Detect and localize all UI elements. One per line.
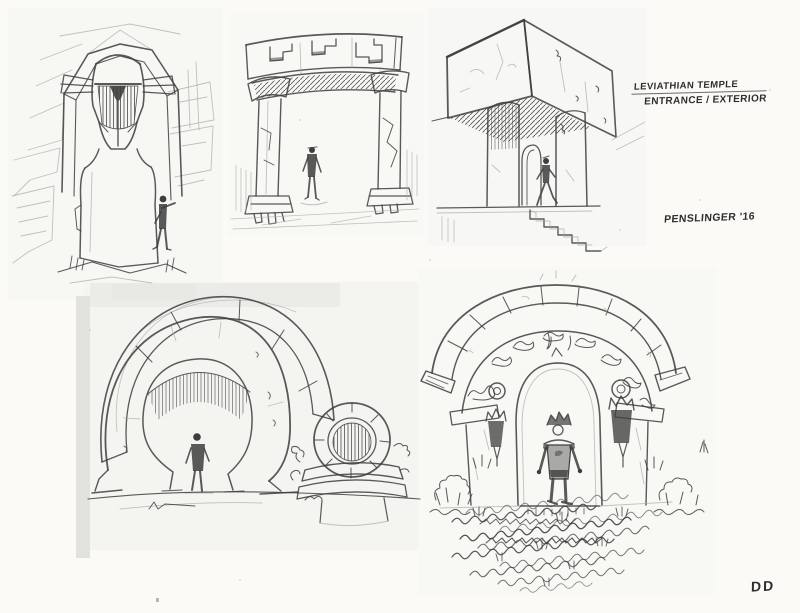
corner-initials: DD xyxy=(751,577,775,594)
sketch-sheet: LEVIATHIAN TEMPLE ENTRANCE / EXTERIOR PE… xyxy=(0,0,800,613)
title-annotation: LEVIATHIAN TEMPLE ENTRANCE / EXTERIOR xyxy=(632,78,767,108)
title-line-1: LEVIATHIAN TEMPLE xyxy=(631,78,766,95)
